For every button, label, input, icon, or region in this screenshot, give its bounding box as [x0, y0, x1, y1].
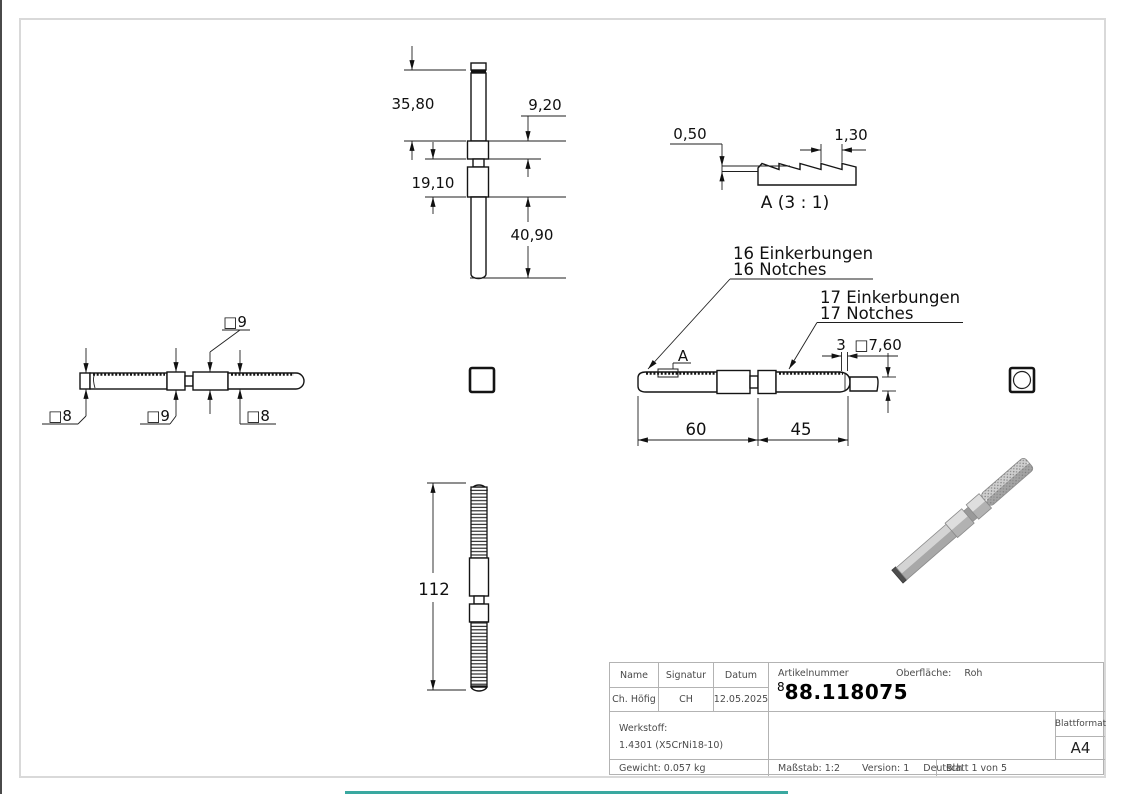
dim-sq8-left: □8	[48, 407, 72, 425]
title-block: Name Signatur Datum Ch. Höfig CH 12.05.2…	[609, 662, 1104, 775]
detail-a-title: A (3 : 1)	[761, 193, 829, 213]
front-view: 35,80 9,20 19,10 40,90	[392, 46, 566, 279]
blattformat-label: Blattformat	[1056, 712, 1105, 737]
dim-35-80: 35,80	[392, 95, 435, 113]
detail-a-view: 0,50 1,30 A (3 : 1)	[670, 125, 868, 213]
drawing-sheet: 35,80 9,20 19,10 40,90 0,50 1,30 A (3 : …	[0, 0, 1123, 794]
title-empty-cell	[769, 712, 1056, 760]
iso-view	[892, 456, 1036, 584]
plan-view: 16 Einkerbungen 16 Notches 17 Einkerbung…	[638, 244, 963, 446]
massstab-cell: Maßstab: 1:2 Version: 1 Deutsch	[769, 760, 937, 776]
dim-sq7-60: □7,60	[854, 336, 902, 354]
dim-112: 112	[418, 580, 450, 599]
end-view-round	[1010, 368, 1034, 392]
artikelnummer: 888.118075	[777, 680, 908, 704]
dim-45: 45	[791, 420, 812, 439]
dim-1-30: 1,30	[834, 126, 867, 144]
oberflaeche-value: Roh	[964, 668, 982, 679]
title-signatur-value: CH	[659, 688, 714, 712]
detail-a-marker-label: A	[678, 347, 689, 365]
dim-3: 3	[836, 336, 846, 354]
title-artikelnummer-cell: Artikelnummer Oberfläche: Roh 888.118075	[769, 663, 1105, 712]
dim-40-90: 40,90	[511, 226, 554, 244]
title-werkstoff-cell: Werkstoff: 1.4301 (X5CrNi18-10)	[610, 712, 769, 760]
dim-sq8-right: □8	[246, 407, 270, 425]
oberflaeche-label: Oberfläche:	[896, 668, 951, 679]
artikelnummer-label: Artikelnummer	[778, 668, 849, 679]
side-view: □9 □8 □9 □8	[42, 313, 304, 425]
dim-60: 60	[686, 420, 707, 439]
artikelnummer-number: 88.118075	[785, 680, 908, 704]
dim-0-50: 0,50	[673, 125, 706, 143]
werkstoff-value: 1.4301 (X5CrNi18-10)	[619, 740, 723, 751]
note-16-notches: 16 Notches	[733, 260, 826, 279]
title-name-value: Ch. Höfig	[610, 688, 659, 712]
dim-9-20: 9,20	[528, 96, 561, 114]
blattformat-value: A4	[1056, 737, 1105, 760]
artikelnummer-prefix: 8	[777, 680, 785, 694]
dim-19-10: 19,10	[412, 174, 455, 192]
note-17-notches: 17 Notches	[820, 304, 913, 323]
werkstoff-label: Werkstoff:	[619, 723, 667, 734]
dim-sq9-mid: □9	[146, 407, 170, 425]
dim-sq9-top: □9	[223, 313, 247, 331]
title-col-datum: Datum	[714, 663, 769, 688]
version: Version: 1	[862, 763, 909, 774]
gewicht-cell: Gewicht: 0.057 kg	[610, 760, 769, 776]
oberflaeche: Oberfläche: Roh	[896, 668, 992, 679]
title-col-name: Name	[610, 663, 659, 688]
title-datum-value: 12.05.2025	[714, 688, 769, 712]
massstab: Maßstab: 1:2	[778, 763, 840, 774]
end-view-square	[470, 368, 494, 392]
title-col-signatur: Signatur	[659, 663, 714, 688]
length-view: 112	[418, 483, 488, 691]
blatt-cell: Blatt 1 von 5	[937, 760, 1105, 776]
